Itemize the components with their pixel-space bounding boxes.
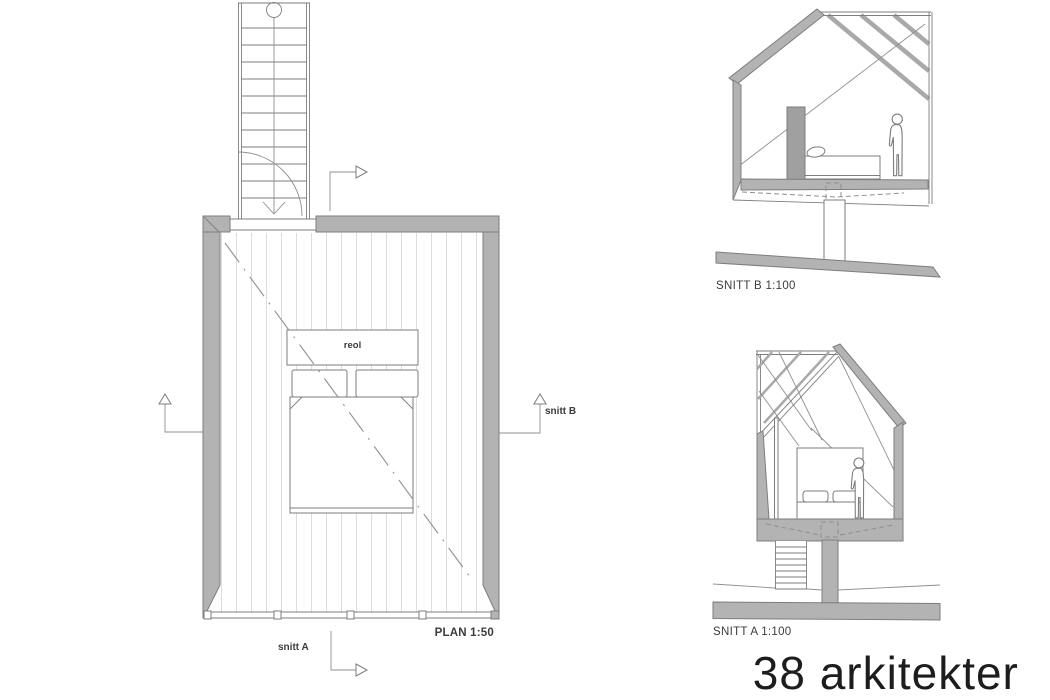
- ground: [713, 602, 940, 620]
- section-marker-a-top: [330, 166, 367, 211]
- support-column: [824, 200, 845, 262]
- section-arrow-up-icon: [159, 394, 171, 404]
- drawing-linework: [0, 0, 1050, 700]
- pillow-right: [356, 370, 418, 397]
- wardrobe: [787, 107, 805, 180]
- section-marker-a-bottom: [331, 631, 367, 676]
- bed-front-view: [797, 502, 860, 520]
- architectural-drawing-sheet: reol snitt B snitt A PLAN 1:50 SNITT B 1…: [0, 0, 1050, 700]
- section-a-title: SNITT A 1:100: [713, 626, 791, 638]
- section-b-title: SNITT B 1:100: [716, 280, 796, 292]
- pillow-right: [833, 491, 858, 502]
- section-arrow-right-icon: [356, 664, 367, 676]
- glass-post: [775, 418, 779, 520]
- floor-slab: [741, 179, 928, 190]
- section-arrow-up-icon: [534, 394, 546, 404]
- person-figure: [889, 114, 902, 176]
- plan-wall-top-right: [316, 216, 499, 232]
- plan-bed-group: [287, 330, 418, 513]
- left-wall: [733, 80, 741, 200]
- plan-scale-label: PLAN 1:50: [408, 627, 494, 639]
- section-b-marker-label: snitt B: [545, 406, 576, 417]
- section-a-marker-label: snitt A: [278, 642, 309, 653]
- plan-wall-left: [203, 232, 220, 611]
- roof-beam: [729, 9, 824, 84]
- plan-glass-facade: [203, 611, 499, 619]
- shelf-label: reol: [287, 340, 418, 351]
- bed: [290, 397, 413, 513]
- plan-wall-right: [483, 232, 499, 611]
- firm-name: 38 arkitekter as: [753, 650, 1050, 700]
- pillow-left: [292, 370, 347, 397]
- section-a-drawing: [713, 344, 940, 620]
- door-swing-arc: [238, 152, 302, 216]
- pillow-left: [803, 491, 828, 502]
- section-marker-b-left: [159, 394, 203, 432]
- section-marker-b-right: [499, 394, 546, 433]
- section-arrow-right-icon: [356, 166, 367, 178]
- roof-beam: [833, 344, 906, 428]
- support-column: [822, 540, 838, 603]
- exterior-stair: [238, 3, 310, 220]
- section-b-drawing: [716, 9, 940, 277]
- entry-stair: [775, 541, 807, 589]
- firm-logo: 38 arkitekter as: [708, 650, 1050, 700]
